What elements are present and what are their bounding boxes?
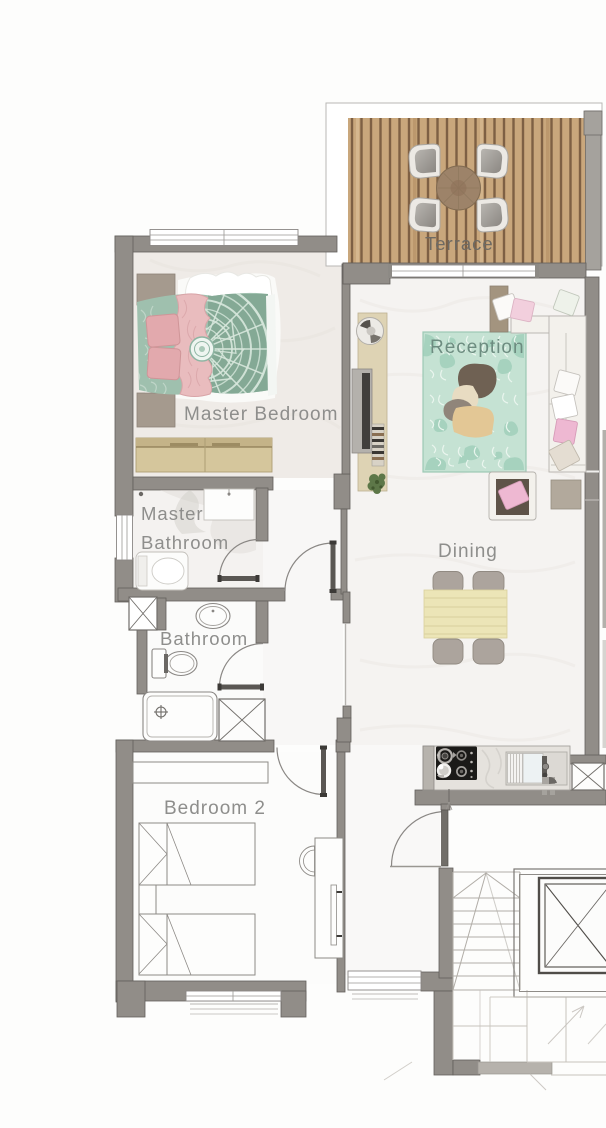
- svg-text:Terrace: Terrace: [425, 233, 494, 254]
- svg-text:Bedroom 2: Bedroom 2: [164, 798, 266, 819]
- svg-text:Master: Master: [141, 503, 204, 524]
- svg-text:Bathroom: Bathroom: [160, 628, 248, 649]
- svg-text:Master Bedroom: Master Bedroom: [184, 404, 338, 425]
- svg-text:Bathroom: Bathroom: [141, 532, 229, 553]
- svg-text:Reception: Reception: [430, 337, 525, 358]
- svg-text:Dining: Dining: [438, 541, 498, 562]
